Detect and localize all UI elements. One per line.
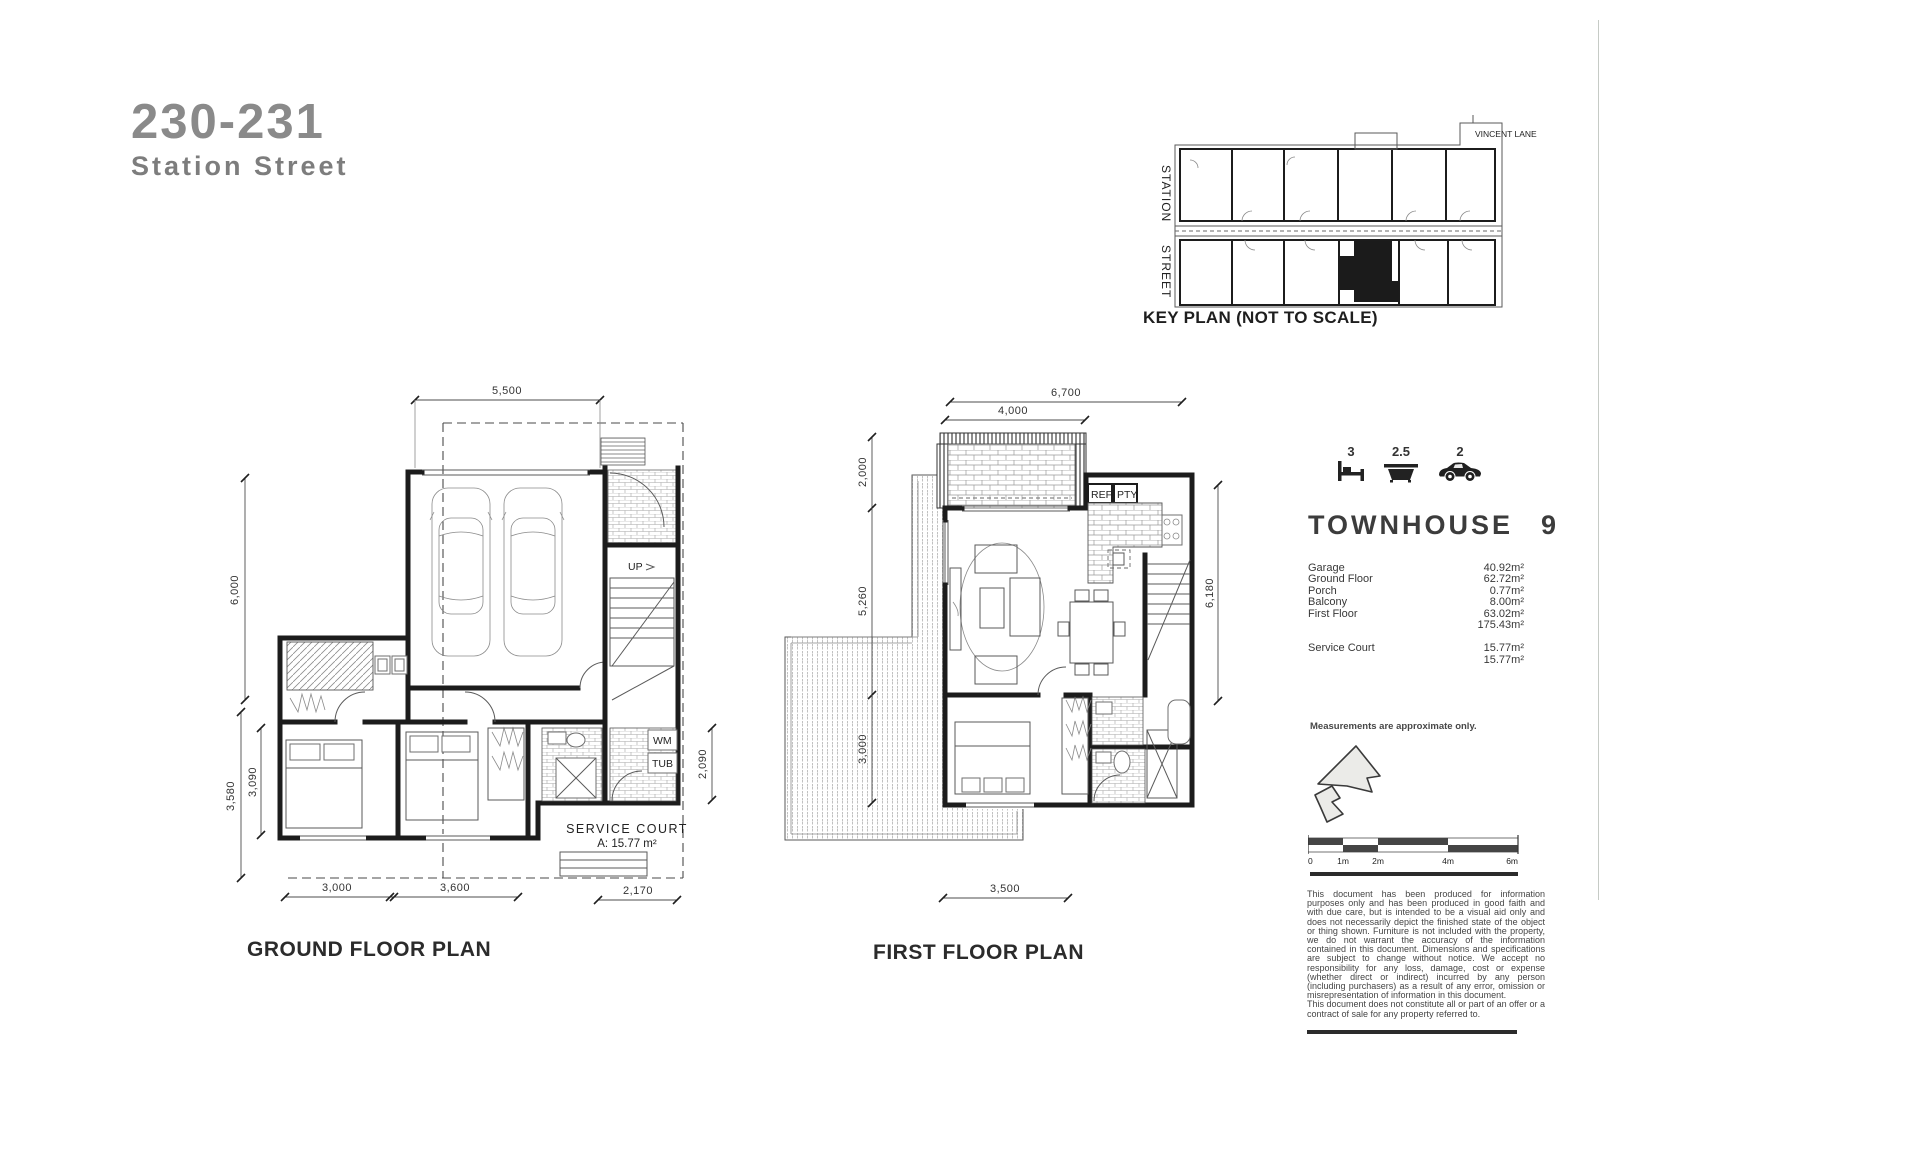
area-row: 175.43m² — [1308, 620, 1524, 631]
area-total: 175.43m² — [1478, 620, 1524, 631]
ff-bedroom — [955, 697, 1091, 794]
key-plan-top-row — [1180, 133, 1495, 221]
vincent-lane-label: VINCENT LANE — [1475, 129, 1537, 139]
key-plan-caption: KEY PLAN (NOT TO SCALE) — [1143, 308, 1378, 328]
gf-stairs: UP — [610, 561, 674, 700]
station-label: STATION — [1159, 165, 1173, 222]
gf-dim-bottom1: 3,000 — [322, 882, 352, 894]
ff-dining — [1058, 590, 1125, 675]
ff-dim-left-mid: 5,260 — [857, 586, 869, 616]
area-label: Service Court — [1308, 643, 1375, 654]
ground-floor-drawing: UP — [160, 360, 760, 980]
street-name: Station Street — [131, 153, 349, 180]
gf-dim-left-upper: 6,000 — [229, 575, 241, 605]
bath-feature: 2.5 — [1382, 444, 1420, 488]
bath-icon — [1382, 459, 1420, 483]
gf-dim-left-inner: 3,090 — [247, 767, 259, 797]
disclaimer-paragraph-1: This document has been produced for info… — [1307, 890, 1545, 1000]
gf-service-court-label: SERVICE COURT — [566, 822, 688, 836]
area-schedule: Garage40.92m² Ground Floor62.72m² Porch0… — [1308, 563, 1524, 666]
ff-bathrooms — [1092, 697, 1190, 803]
gf-dim-bottom3: 2,170 — [623, 885, 653, 897]
townhouse-title: TOWNHOUSE 9 — [1308, 510, 1524, 541]
measurements-note: Measurements are approximate only. — [1310, 721, 1477, 732]
area-value: 8.00m² — [1490, 597, 1524, 608]
ff-dim-left-upper: 2,000 — [857, 457, 869, 487]
ff-dim-right: 6,180 — [1204, 578, 1216, 608]
gf-service-court: SERVICE COURT A: 15.77 m² — [560, 822, 688, 876]
townhouse-name: TOWNHOUSE — [1308, 510, 1513, 541]
scale-2m: 2m — [1372, 856, 1384, 866]
gf-car-left — [430, 488, 492, 656]
scale-4m: 4m — [1442, 856, 1454, 866]
lot-number: 230-231 — [131, 98, 349, 147]
scale-bar: 0 1m 2m 4m 6m — [1308, 835, 1524, 869]
gf-bedroom1 — [286, 740, 362, 828]
area-label: First Floor — [1308, 609, 1358, 620]
key-plan-drawing: VINCENT LANE STATION STREET — [1130, 85, 1540, 320]
bed-icon — [1336, 459, 1366, 483]
scale-6m: 6m — [1506, 856, 1518, 866]
townhouse-number: 9 — [1541, 510, 1556, 541]
page-edge-line — [1598, 20, 1599, 900]
gf-bedroom2 — [406, 728, 524, 820]
bath-count: 2.5 — [1382, 444, 1420, 459]
area-row: Balcony8.00m² — [1308, 597, 1524, 608]
ff-balcony — [937, 433, 1086, 508]
ff-dim-left-lower: 3,000 — [857, 734, 869, 764]
ff-dim-top-inner: 4,000 — [998, 405, 1028, 417]
divider-rule-top — [1310, 872, 1518, 876]
gf-dim-top: 5,500 — [492, 385, 522, 397]
gf-dim-bottom2: 3,600 — [440, 882, 470, 894]
car-count: 2 — [1436, 444, 1484, 459]
first-floor-caption: FIRST FLOOR PLAN — [873, 941, 1084, 965]
ff-ref-label: REF — [1091, 489, 1112, 501]
gf-car-right — [502, 488, 564, 656]
gf-bathroom: WM TUB — [542, 728, 677, 801]
divider-rule-bottom — [1307, 1030, 1517, 1034]
north-arrow-icon — [1310, 740, 1390, 832]
disclaimer-block: This document has been produced for info… — [1307, 890, 1545, 1019]
ff-dim-top: 6,700 — [1051, 387, 1081, 399]
gf-up-label: UP — [628, 561, 643, 573]
ff-dim-bottom: 3,500 — [990, 883, 1020, 895]
bed-feature: 3 — [1336, 444, 1366, 488]
ground-floor-caption: GROUND FLOOR PLAN — [247, 938, 491, 962]
street-label: STREET — [1159, 245, 1173, 298]
gf-wm-label: WM — [653, 735, 672, 747]
area-row: 15.77m² — [1308, 655, 1524, 666]
scale-0: 0 — [1308, 856, 1313, 866]
feature-icons-row: 3 2.5 2 — [1308, 444, 1524, 496]
gf-store — [287, 642, 407, 712]
bed-count: 3 — [1336, 444, 1366, 459]
floorplan-sheet: 230-231 Station Street — [0, 0, 1920, 1165]
ff-kitchen: REF PTY — [1088, 484, 1182, 583]
ff-living — [950, 543, 1044, 684]
key-plan-highlighted-unit — [1339, 241, 1399, 302]
summary-panel: 3 2.5 2 — [1308, 444, 1524, 666]
gf-tub-label: TUB — [652, 758, 673, 770]
ff-stairs — [1147, 560, 1190, 798]
disclaimer-paragraph-2: This document does not constitute all or… — [1307, 1000, 1545, 1018]
car-feature: 2 — [1436, 444, 1484, 488]
gf-dim-left-outer: 3,580 — [225, 781, 237, 811]
gf-dim-right: 2,090 — [697, 749, 709, 779]
car-icon — [1436, 459, 1484, 483]
gf-service-court-area: A: 15.77 m² — [597, 838, 657, 850]
header-block: 230-231 Station Street — [131, 98, 349, 180]
ff-pty-label: PTY — [1117, 489, 1137, 501]
first-floor-drawing: REF PTY — [770, 360, 1290, 980]
key-plan-bottom-row — [1180, 240, 1495, 305]
gf-porch — [601, 438, 678, 544]
area-value: 15.77m² — [1484, 655, 1524, 666]
area-label: Balcony — [1308, 597, 1347, 608]
scale-1m: 1m — [1337, 856, 1349, 866]
